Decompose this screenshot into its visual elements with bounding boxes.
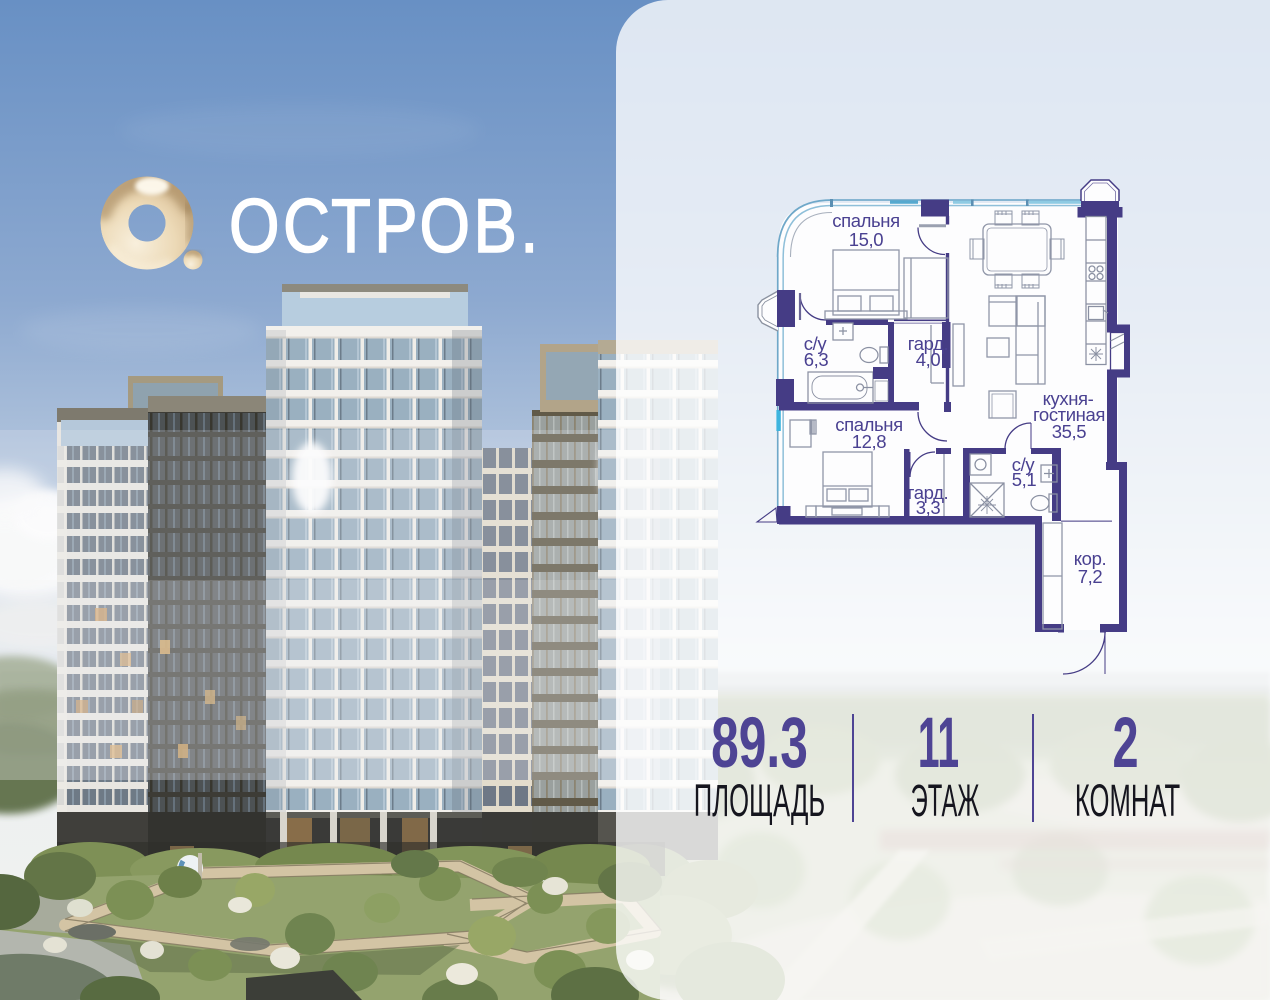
svg-text:11: 11 [918,704,959,783]
svg-text:7,2: 7,2 [1078,566,1103,587]
svg-text:6,3: 6,3 [804,349,829,370]
svg-text:5,1: 5,1 [1012,469,1037,490]
svg-text:ПЛОЩАДЬ: ПЛОЩАДЬ [694,775,825,825]
svg-text:12,8: 12,8 [852,431,887,452]
svg-text:ОСТРОВ.: ОСТРОВ. [229,183,542,268]
svg-text:КОМНАТ: КОМНАТ [1075,775,1180,825]
svg-text:15,0: 15,0 [849,229,884,250]
svg-text:3,3: 3,3 [916,497,941,518]
svg-text:4,0: 4,0 [916,349,941,370]
svg-text:спальня: спальня [832,210,899,231]
svg-text:89.3: 89.3 [711,703,808,782]
svg-text:35,5: 35,5 [1052,421,1087,442]
svg-text:2: 2 [1112,703,1138,782]
svg-text:ЭТАЖ: ЭТАЖ [911,775,980,826]
